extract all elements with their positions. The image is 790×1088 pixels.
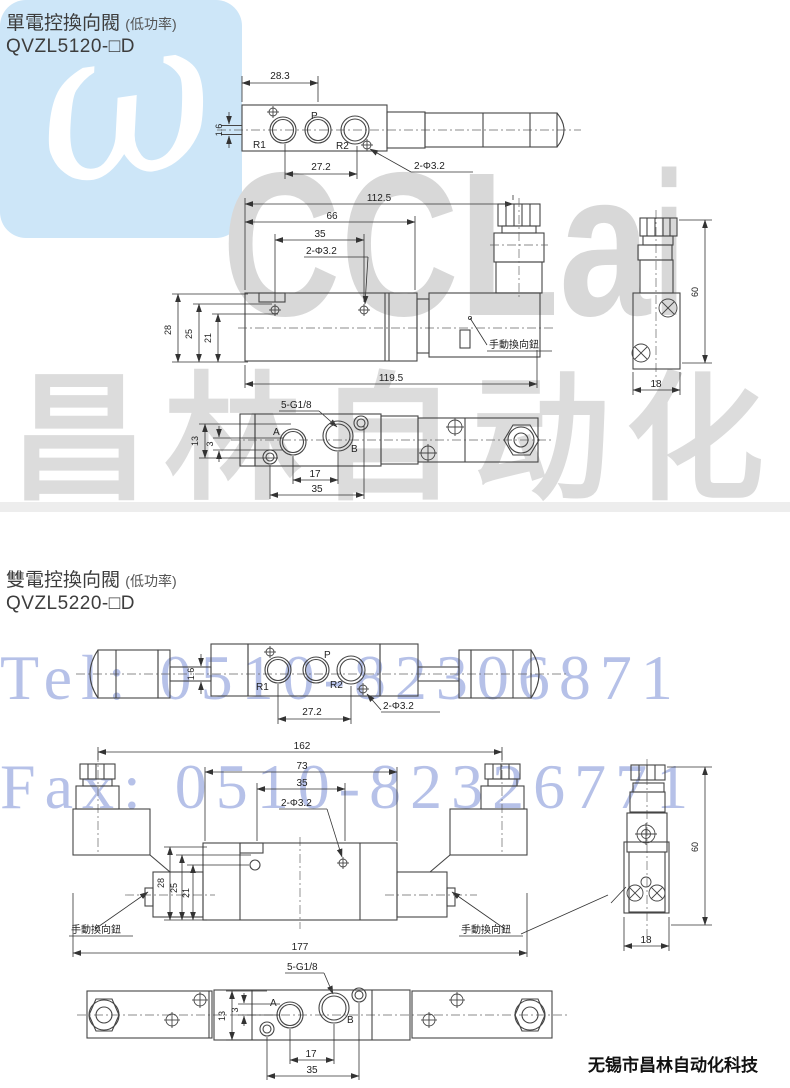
port-label: R1 <box>253 140 266 151</box>
dim-1-6: 1.6 <box>214 112 229 148</box>
dim-35: 35 <box>257 778 345 841</box>
manual-override-knob <box>145 888 153 906</box>
dim-height-25: 25 <box>184 304 272 362</box>
screw-icon <box>659 299 677 317</box>
dim-label: 28.3 <box>270 71 290 82</box>
dim-label: 21 <box>181 888 191 898</box>
dim-label: 2-Φ3.2 <box>281 798 312 809</box>
dim-label: 60 <box>690 842 700 852</box>
dim-label: 35 <box>314 229 326 240</box>
s2-side-view-drawing: 60 18 <box>610 755 790 955</box>
dim-label: 25 <box>184 329 194 339</box>
dim-35: 35 <box>275 229 364 302</box>
port-label: P <box>324 650 331 661</box>
dim-height-21: 21 <box>181 865 249 920</box>
title-subtitle: (低功率) <box>125 573 176 589</box>
dim-label: 17 <box>305 1049 317 1060</box>
holes-callout: 2-Φ3.2 <box>304 246 368 304</box>
s1-side-view-drawing: 60 18 <box>600 190 790 402</box>
port-label: R2 <box>330 680 343 691</box>
right-solenoid-front <box>397 764 527 917</box>
section2-title: 雙電控換向閥 (低功率) <box>6 565 177 592</box>
dim-28-3: 28.3 <box>242 71 318 102</box>
dim-label: 27.2 <box>302 707 322 718</box>
dim-13: 13 <box>217 991 267 1040</box>
dim-label: 2-Φ3.2 <box>306 246 337 257</box>
dim-label: 18 <box>650 379 662 390</box>
dim-height-28: 28 <box>156 847 207 920</box>
dim-width-18: 18 <box>633 372 680 395</box>
dim-label: 3 <box>230 1007 240 1012</box>
s2-top-view-drawing: R1 P R2 1.6 27.2 2-Φ3.2 <box>68 634 608 736</box>
left-solenoid-top <box>90 644 248 698</box>
manual-override-knob <box>460 330 470 348</box>
port-label: B <box>351 444 358 455</box>
dim-label: 60 <box>690 287 700 297</box>
dim-label: 1.6 <box>214 124 224 137</box>
s1-top-view-drawing: R1 P R2 28.3 1.6 27.2 2-Φ3.2 <box>215 66 585 188</box>
dim-17: 17 <box>290 1024 334 1064</box>
knob-label: 手動換向鈕 <box>71 923 121 936</box>
dim-label: 28 <box>163 325 173 335</box>
dim-label: 35 <box>296 778 308 789</box>
valve-body-top <box>221 105 387 151</box>
dim-label: 119.5 <box>379 373 404 384</box>
title-subtitle: (低功率) <box>125 16 176 32</box>
title-text: 雙電控換向閥 <box>6 570 120 591</box>
right-solenoid-top <box>380 644 539 698</box>
dim-width-18: 18 <box>624 917 669 951</box>
dim-label: 66 <box>326 211 338 222</box>
port-label: R2 <box>336 141 349 152</box>
dim-label: 28 <box>156 878 166 888</box>
mount-hole-crosshair <box>361 139 373 151</box>
port-label: P <box>311 111 318 122</box>
knob-label: 手動換向鈕 <box>489 338 539 351</box>
dim-height-21: 21 <box>203 314 278 362</box>
dim-label: 3 <box>205 441 215 446</box>
screw-icon <box>649 885 665 901</box>
datasheet-page: ω CCLair 昌林自动化 Tel: 0510-82306871 Fax: 0… <box>0 0 790 1088</box>
dim-label: 73 <box>296 761 308 772</box>
valve-body-front <box>245 293 417 361</box>
solenoid-side <box>611 765 669 913</box>
dim-label: 112.5 <box>367 193 392 204</box>
section2-model: QVZL5220-□D <box>6 593 135 615</box>
dim-label: 21 <box>203 333 213 343</box>
dim-label: 5-G1/8 <box>281 400 312 411</box>
manual-knob-callout-left: 手動換向鈕 <box>69 892 148 936</box>
dim-17: 17 <box>293 452 338 484</box>
holes-callout: 2-Φ3.2 <box>279 798 342 857</box>
dim-label: 25 <box>169 883 179 893</box>
dim-label: 2-Φ3.2 <box>414 161 445 172</box>
thread-callout: 5-G1/8 <box>285 962 333 994</box>
right-solenoid-bottom <box>412 991 552 1038</box>
dim-label: 2-Φ3.2 <box>383 701 414 712</box>
dim-35: 35 <box>267 1003 359 1080</box>
section1-title: 單電控換向閥 (低功率) <box>6 8 177 35</box>
screw-icon <box>632 344 650 362</box>
knob-label: 手動換向鈕 <box>461 923 511 936</box>
dim-label: 162 <box>294 741 311 752</box>
dim-label: 35 <box>306 1065 318 1076</box>
dim-height-60: 60 <box>679 220 712 363</box>
port-label: A <box>270 998 277 1009</box>
s2-bottom-view-drawing: 5-G1/8 A B <box>62 958 582 1088</box>
manual-knob-callout-right: 手動換向鈕 <box>452 892 608 936</box>
valve-body-top: R1 P R2 <box>248 644 380 696</box>
valve-body-bottom: A B <box>214 988 410 1040</box>
dim-label: 13 <box>190 436 200 446</box>
holes-callout: 2-Φ3.2 <box>367 694 440 712</box>
dim-162: 162 <box>98 741 502 760</box>
dim-label: 35 <box>311 484 323 495</box>
solenoid-front <box>417 198 548 357</box>
left-solenoid-bottom <box>87 991 212 1038</box>
s2-front-view-drawing: 162 73 35 2-Φ3.2 <box>65 743 610 961</box>
footer-company-name: 无锡市昌林自动化科技 <box>588 1051 758 1076</box>
dim-label: 18 <box>640 935 652 946</box>
title-text: 單電控換向閥 <box>6 13 120 34</box>
port-label: R1 <box>256 682 269 693</box>
dim-height-60: 60 <box>667 767 712 925</box>
dim-label: 17 <box>309 469 321 480</box>
dim-112-5: 112.5 <box>245 193 513 290</box>
s1-front-view-drawing: 112.5 66 35 2-Φ3.2 <box>160 190 640 397</box>
s1-bottom-view-drawing: 5-G1/8 A B 13 <box>183 396 583 528</box>
dim-119-5: 119.5 <box>245 350 537 388</box>
mount-hole-crosshair <box>267 106 279 118</box>
holes-callout: 2-Φ3.2 <box>370 149 473 172</box>
dim-label: 1.6 <box>186 668 196 681</box>
dim-label: 177 <box>292 942 309 953</box>
port-label: A <box>273 427 280 438</box>
dim-3: 3 <box>205 426 283 462</box>
dim-label: 5-G1/8 <box>287 962 318 973</box>
dim-label: 27.2 <box>311 162 331 173</box>
dim-label: 13 <box>217 1011 227 1021</box>
section1-model: QVZL5120-□D <box>6 36 135 58</box>
port-label: B <box>347 1015 354 1026</box>
manual-override-knob <box>447 888 455 906</box>
